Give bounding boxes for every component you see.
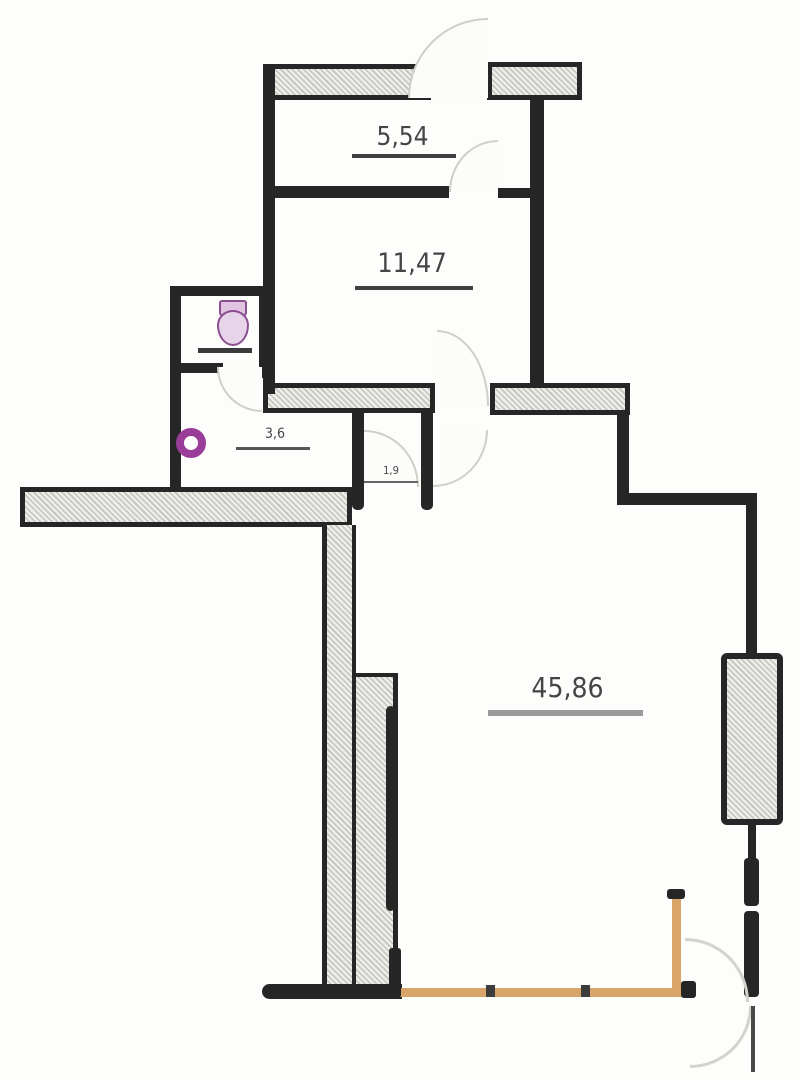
area-underline-balcony: [352, 154, 456, 158]
wall-bottom-cap: [262, 984, 402, 999]
floor-plan: 5,54 11,47 3,6 1,9 45,86: [0, 0, 800, 1081]
area-underline-hallway: [364, 481, 418, 483]
door-swing-bedroom: [437, 330, 489, 406]
area-label-bathroom: 3,6: [244, 427, 307, 441]
wall-niche-slot: [386, 706, 395, 911]
wall-bedroom-bottom-right: [490, 383, 630, 415]
wall-step-horizontal: [617, 493, 757, 505]
area-label-living-room: 45,86: [498, 674, 638, 702]
wall-left-outer-mid: [170, 286, 181, 492]
door-swing-hall-right: [433, 430, 488, 487]
wall-bedroom-bottom-left: [263, 383, 435, 413]
window-node-right: [681, 981, 696, 998]
wall-wc-right: [259, 294, 272, 378]
area-underline-bedroom: [355, 286, 473, 290]
wall-right-inner: [530, 98, 544, 386]
wall-shaft-upper: [322, 525, 356, 985]
area-label-hallway: 1,9: [365, 465, 417, 476]
window-mullion-1: [486, 985, 495, 997]
wall-right-below-radiator: [748, 823, 756, 862]
area-label-bedroom: 11,47: [358, 250, 466, 277]
radiator: [721, 653, 783, 825]
wall-step-vertical: [617, 410, 629, 505]
wall-top-left: [263, 64, 431, 100]
door-leaf-entry: [751, 1006, 755, 1072]
window-band-horizontal: [396, 988, 692, 997]
wall-right-upper: [746, 493, 757, 655]
toilet-shelf-line: [198, 348, 252, 353]
area-label-balcony: 5,54: [355, 124, 450, 150]
wall-hall-left: [352, 413, 364, 510]
door-swing-balcony: [449, 140, 498, 192]
area-underline-bathroom: [236, 447, 310, 450]
wall-hall-right: [421, 413, 433, 510]
wall-corridor-long: [20, 487, 352, 527]
window-post-left: [389, 948, 401, 998]
toilet-bowl-icon: [217, 310, 249, 346]
sink-icon: [176, 428, 206, 458]
wall-balcony-bedroom-right: [498, 188, 532, 198]
window-band-vertical: [672, 896, 681, 994]
door-swing-hall-left: [364, 430, 419, 487]
door-swing-balcony-exterior: [408, 18, 488, 98]
area-underline-living-room: [488, 710, 643, 716]
window-cap-top: [667, 889, 685, 899]
wall-balcony-bedroom: [273, 186, 449, 198]
wall-top-right: [487, 62, 582, 100]
wall-right-door-jamb-upper: [744, 858, 759, 906]
wall-wc-top: [172, 286, 272, 296]
window-mullion-2: [581, 985, 590, 997]
door-swing-wc: [217, 367, 262, 412]
door-arc-entry: [690, 1006, 752, 1068]
